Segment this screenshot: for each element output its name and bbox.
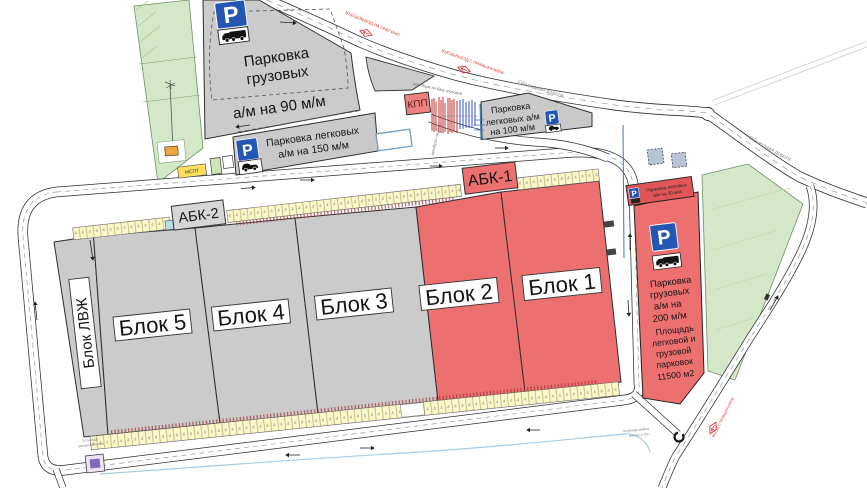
svg-text:P: P — [548, 112, 556, 125]
svg-text:P: P — [656, 226, 672, 249]
svg-text:P: P — [222, 1, 240, 29]
